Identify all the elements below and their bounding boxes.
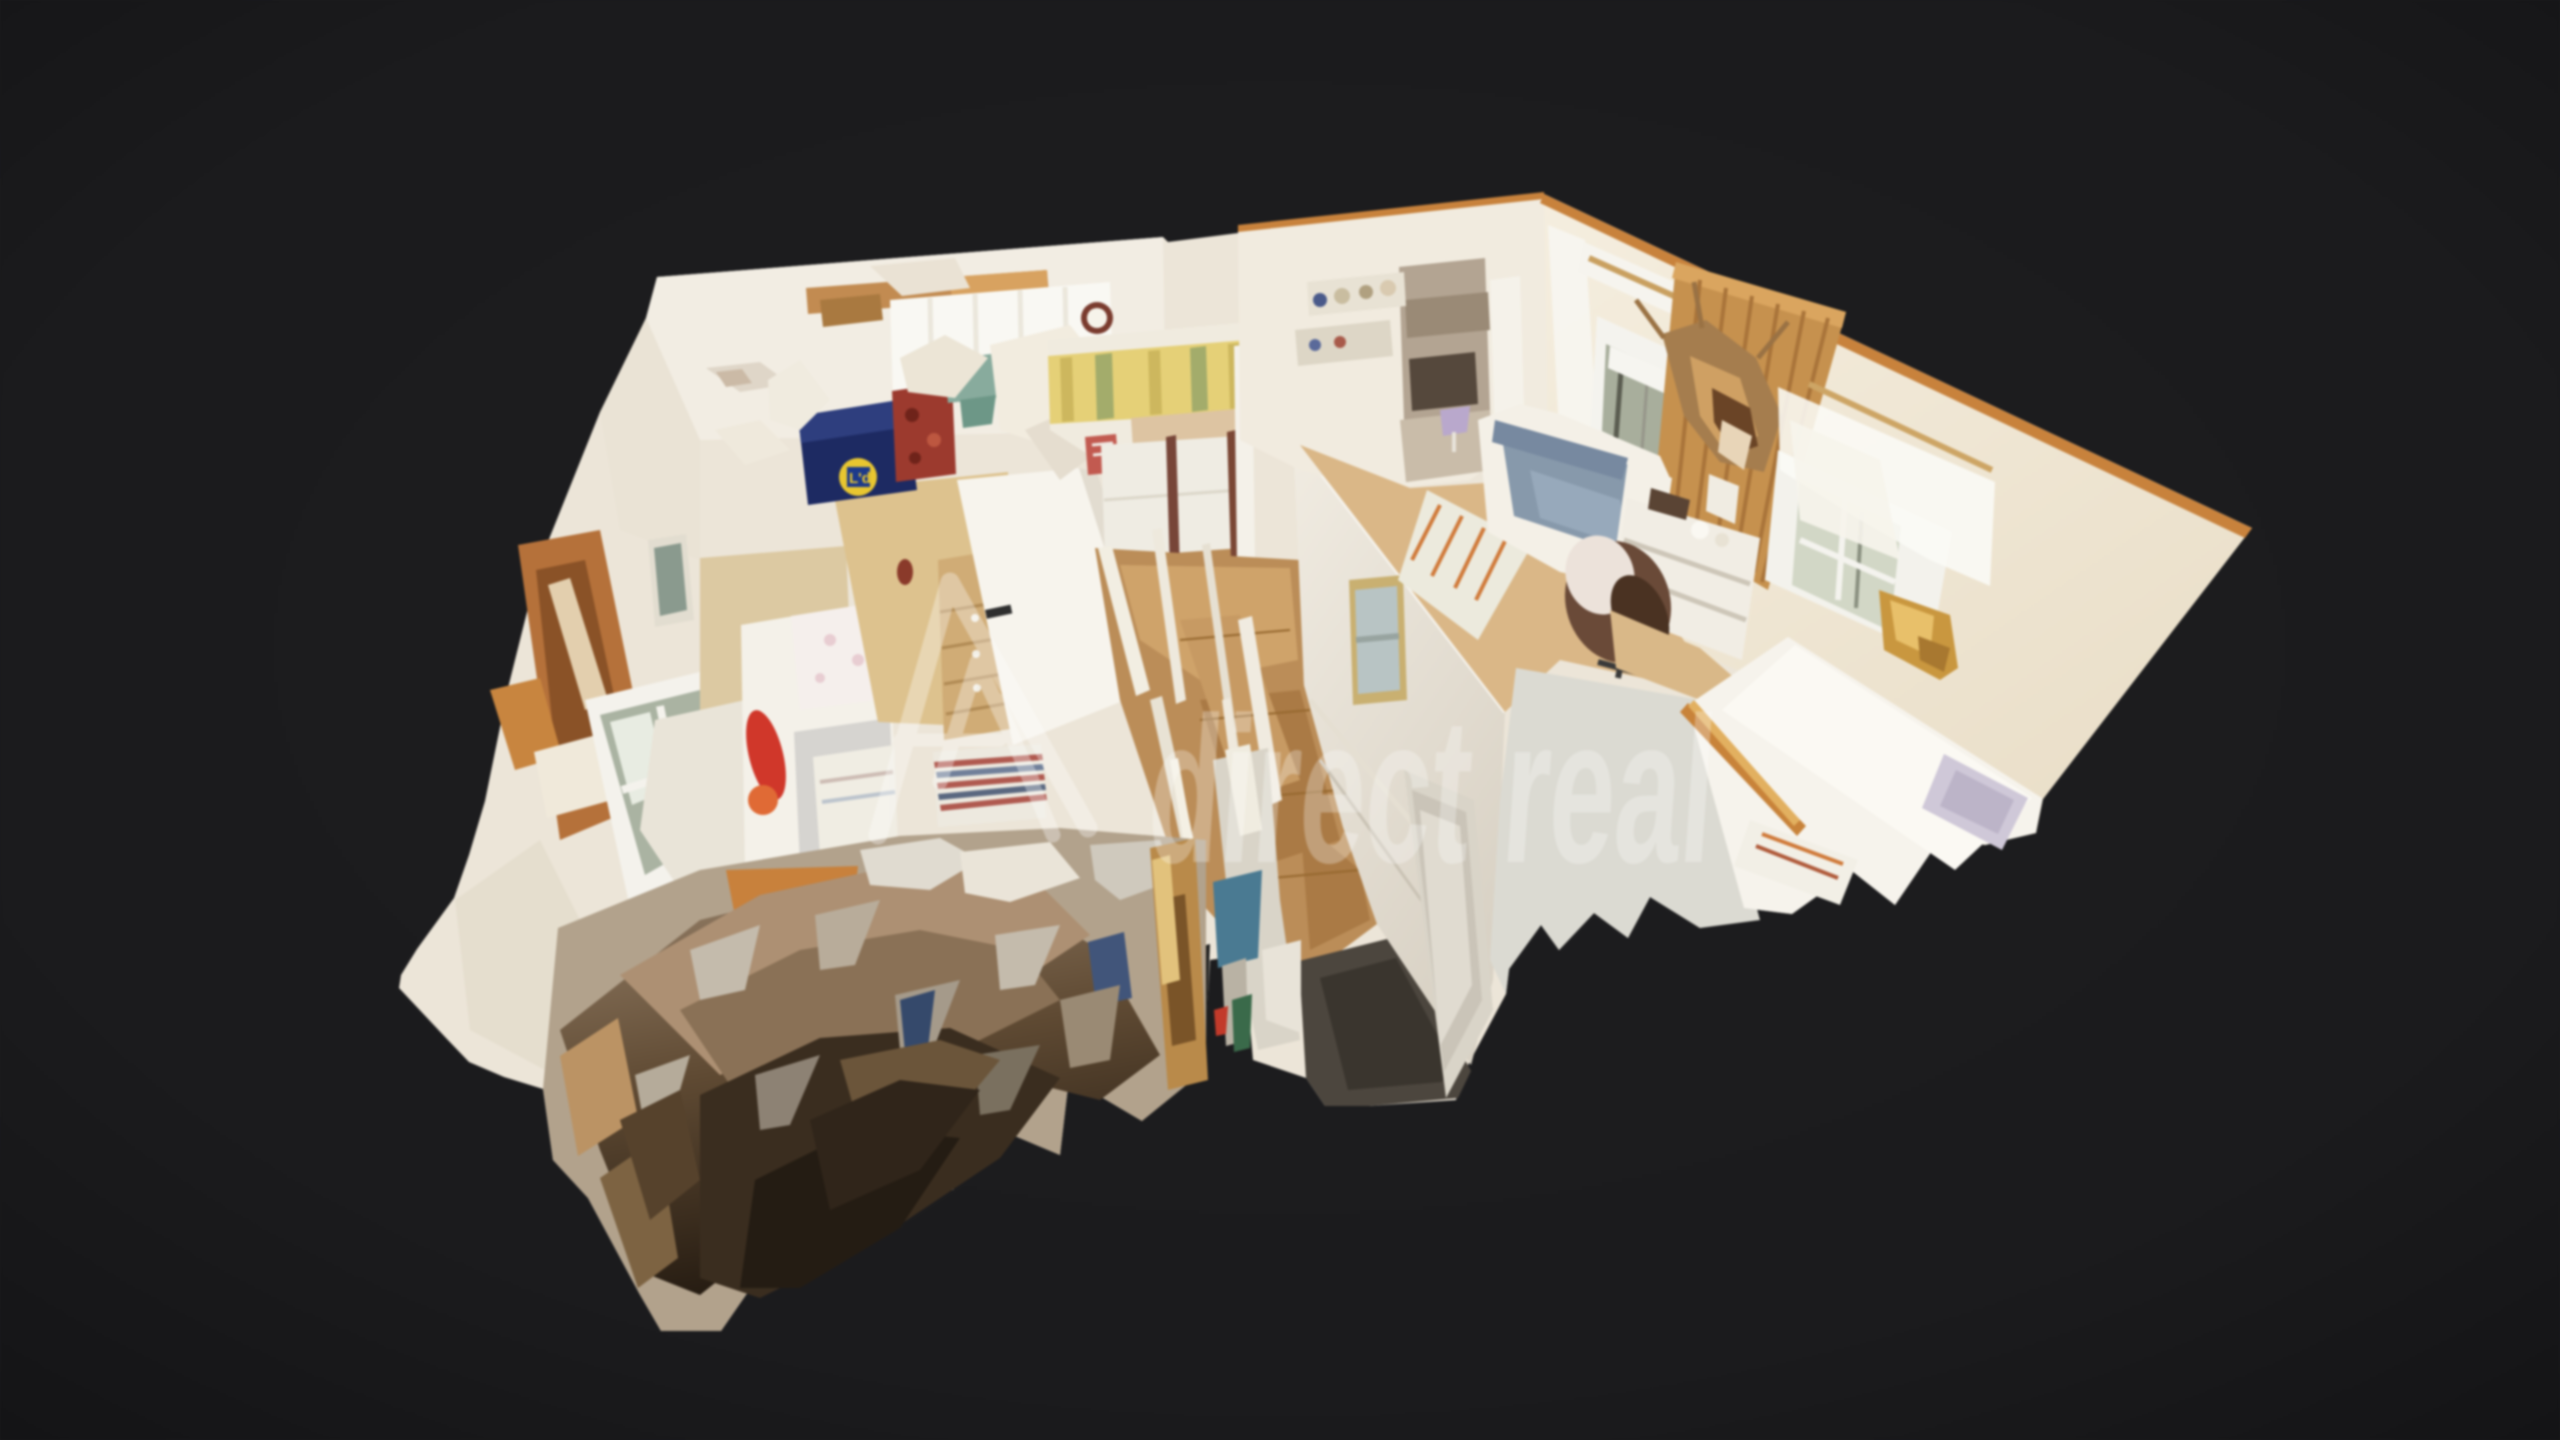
svg-text:L'dl: L'dl bbox=[849, 470, 875, 487]
svg-text:direct real: direct real bbox=[1142, 674, 1723, 907]
